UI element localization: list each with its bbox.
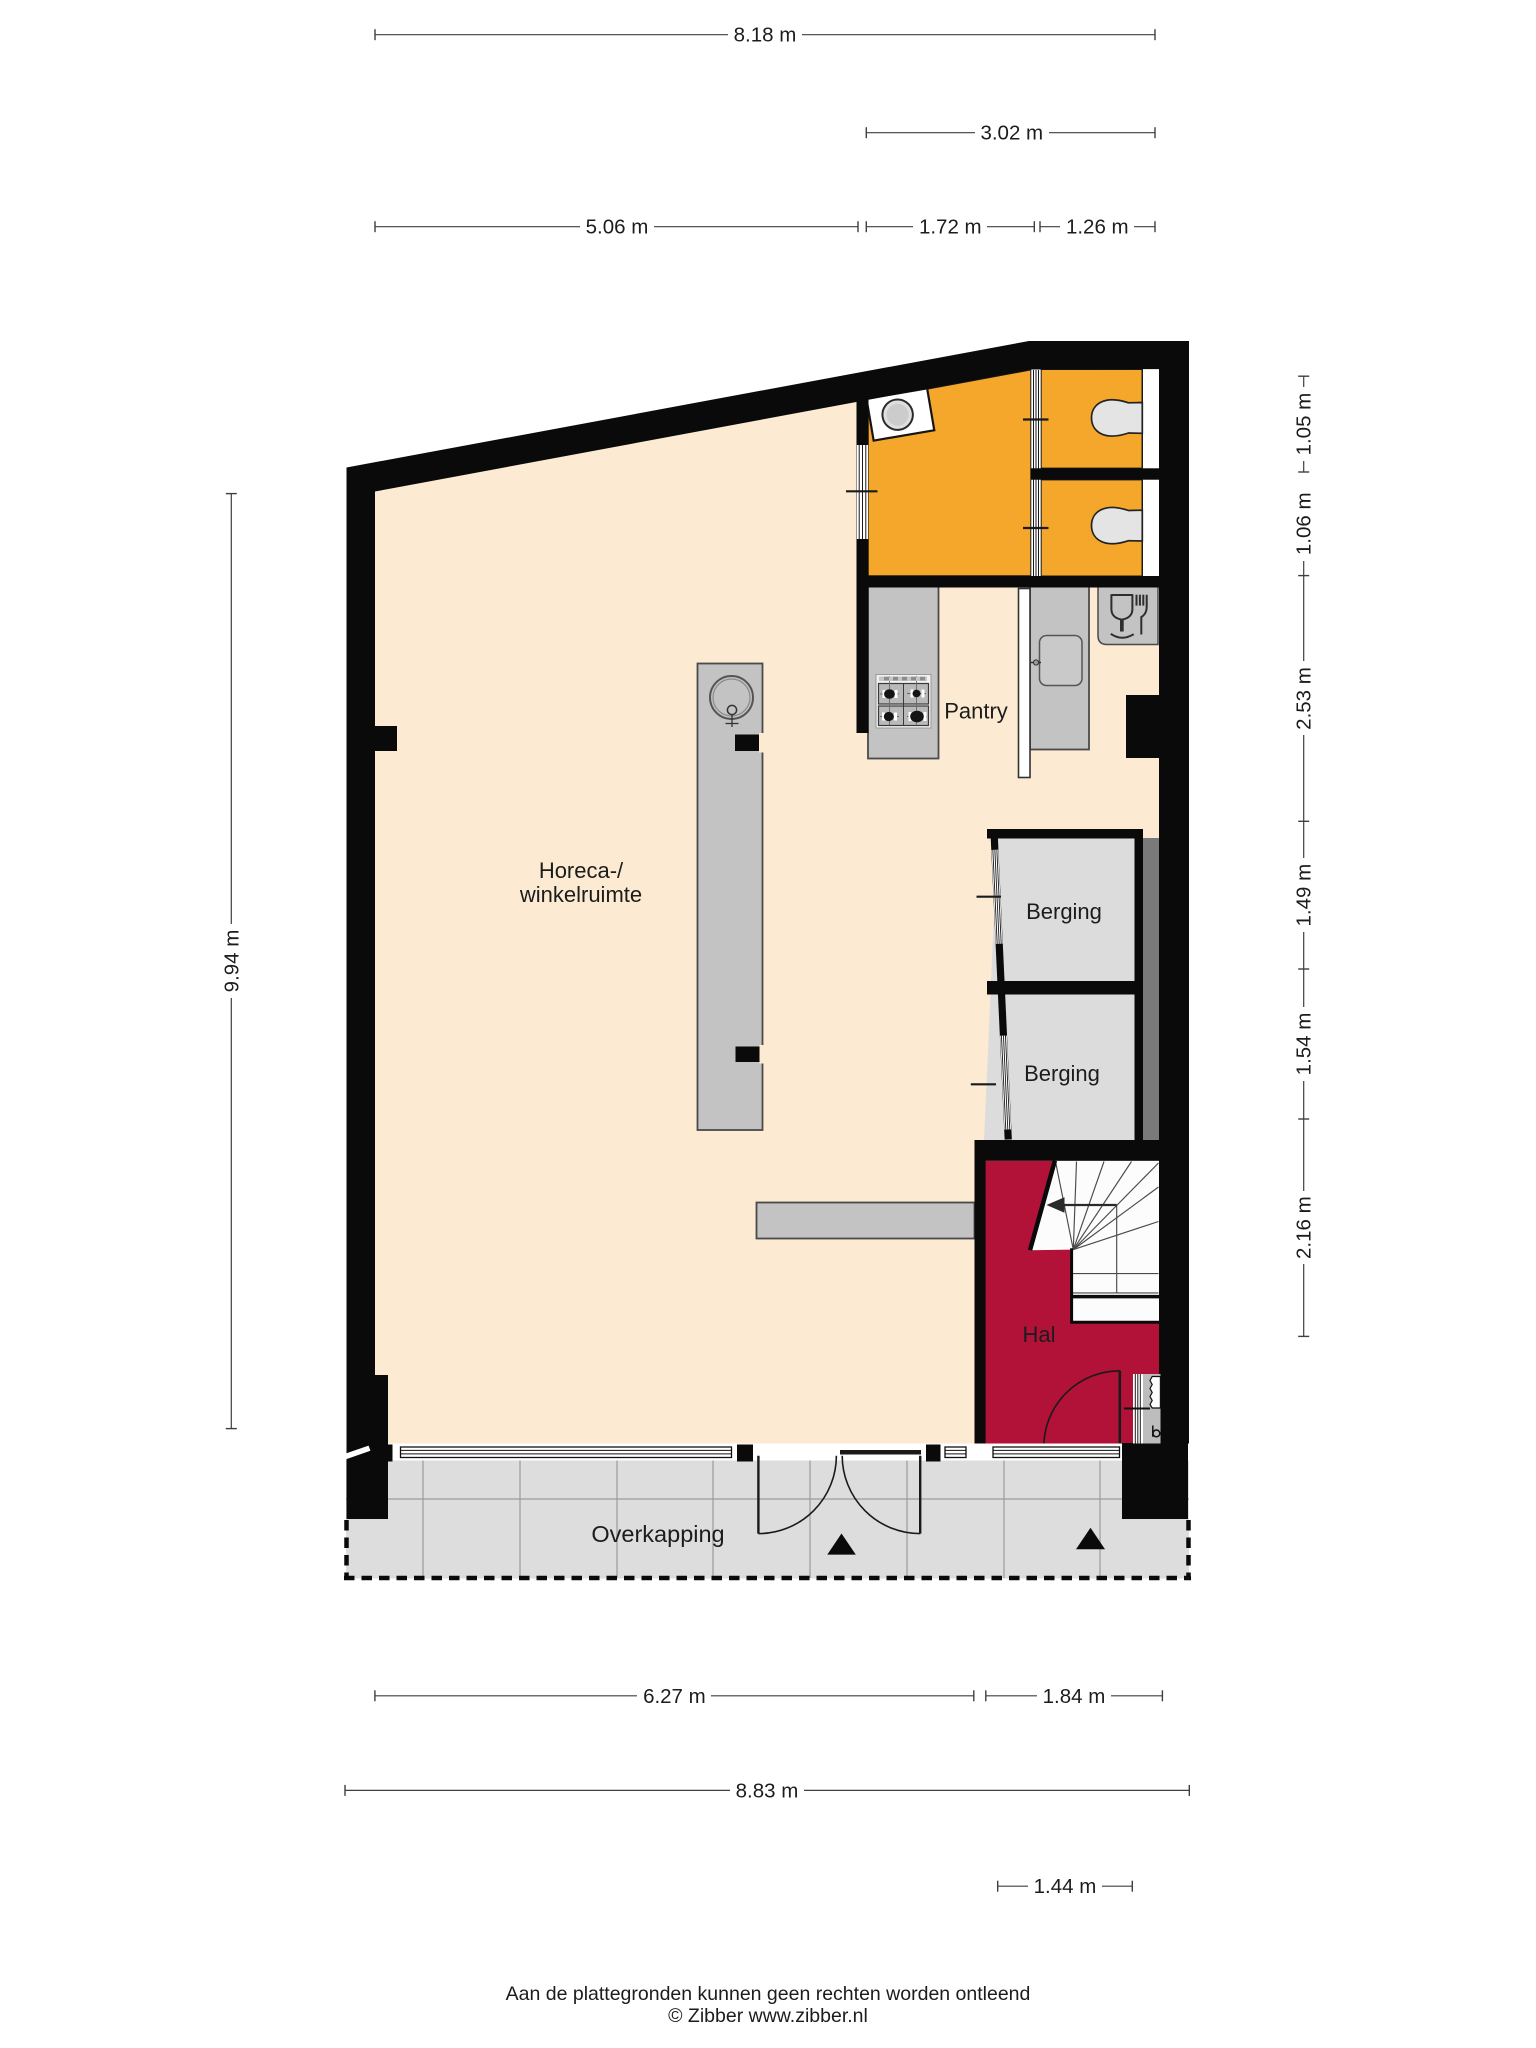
svg-text:1.54 m: 1.54 m bbox=[1293, 1013, 1316, 1076]
svg-text:Aan de plattegronden kunnen ge: Aan de plattegronden kunnen geen rechten… bbox=[506, 1983, 1031, 2005]
svg-text:8.18 m: 8.18 m bbox=[734, 24, 797, 47]
svg-text:1.72 m: 1.72 m bbox=[919, 216, 982, 239]
svg-text:2.53 m: 2.53 m bbox=[1293, 667, 1316, 730]
svg-text:2.16 m: 2.16 m bbox=[1293, 1196, 1316, 1259]
svg-text:winkelruimte: winkelruimte bbox=[519, 882, 642, 907]
svg-text:1.49 m: 1.49 m bbox=[1293, 864, 1316, 927]
svg-text:Berging: Berging bbox=[1024, 1061, 1100, 1086]
svg-text:Pantry: Pantry bbox=[944, 699, 1008, 724]
svg-text:6.27 m: 6.27 m bbox=[643, 1685, 706, 1708]
svg-text:1.26 m: 1.26 m bbox=[1066, 216, 1129, 239]
svg-text:1.84 m: 1.84 m bbox=[1043, 1685, 1106, 1708]
svg-text:9.94 m: 9.94 m bbox=[220, 930, 243, 993]
svg-text:1.44 m: 1.44 m bbox=[1034, 1875, 1097, 1898]
svg-text:1.06 m: 1.06 m bbox=[1293, 492, 1316, 555]
svg-text:8.83 m: 8.83 m bbox=[736, 1779, 799, 1802]
svg-text:Overkapping: Overkapping bbox=[591, 1521, 724, 1547]
svg-text:3.02 m: 3.02 m bbox=[980, 122, 1043, 145]
svg-text:Berging: Berging bbox=[1026, 899, 1102, 924]
svg-text:© Zibber www.zibber.nl: © Zibber www.zibber.nl bbox=[668, 2005, 868, 2027]
svg-text:1.05 m: 1.05 m bbox=[1293, 393, 1316, 456]
svg-text:Hal: Hal bbox=[1022, 1322, 1055, 1347]
svg-text:Horeca-/: Horeca-/ bbox=[539, 858, 624, 883]
svg-text:5.06 m: 5.06 m bbox=[586, 216, 649, 239]
